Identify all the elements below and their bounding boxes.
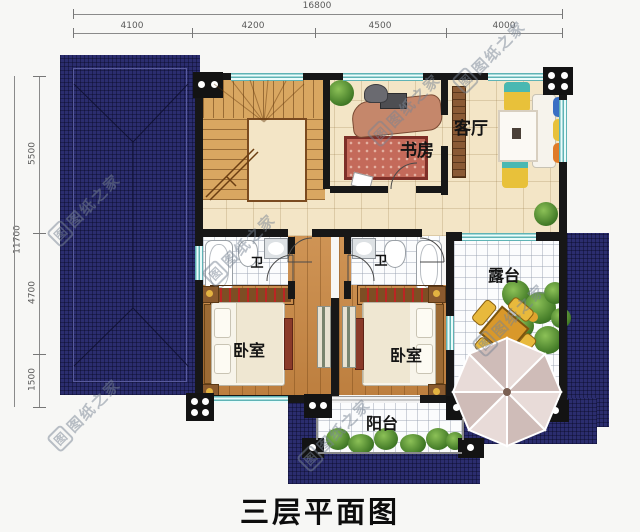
dim-left-seg-2: 4700 <box>28 263 39 323</box>
dim-line <box>14 76 15 407</box>
window <box>214 396 288 403</box>
dim-top-seg-3: 4500 <box>355 21 405 32</box>
balcony-shrub <box>400 434 426 454</box>
bathroom-right-label: 卫 <box>370 254 392 270</box>
dim-top-total: 16800 <box>287 1 347 12</box>
left-roof-ridge-border <box>73 68 187 382</box>
column-post <box>458 438 484 458</box>
bed-end-bench <box>355 318 364 370</box>
column-post <box>193 72 223 98</box>
study-label: 书房 <box>388 141 446 161</box>
bedroom-right-label: 卧室 <box>376 346 436 365</box>
column-post <box>446 396 478 420</box>
column-post <box>186 393 214 421</box>
dim-left-seg-1: 5500 <box>28 124 39 184</box>
wall <box>288 237 295 254</box>
balcony-railing <box>462 418 464 440</box>
wall <box>344 237 351 254</box>
floor-plan-page: 16800 4100 4200 4500 4000 11700 5500 470… <box>0 0 640 532</box>
nightstand <box>428 286 446 303</box>
balcony-railing <box>318 452 462 454</box>
window <box>559 100 567 162</box>
dim-left-seg-3: 1500 <box>28 350 39 410</box>
potted-plant-icon <box>328 80 354 106</box>
column-post <box>543 400 569 422</box>
window <box>446 316 454 350</box>
bed-end-bench <box>284 318 293 370</box>
window <box>462 233 536 241</box>
blanket <box>363 303 410 383</box>
wall <box>323 77 330 189</box>
pillow <box>214 308 231 338</box>
stair-treads-left <box>203 118 247 200</box>
column-post <box>304 394 332 418</box>
window <box>343 73 423 81</box>
wall <box>288 281 295 299</box>
column-post <box>543 67 573 95</box>
plan-title: 三层平面图 <box>160 489 480 531</box>
dim-line <box>73 33 562 34</box>
terrace-label: 露台 <box>478 266 530 285</box>
dim-top-seg-2: 4200 <box>228 21 278 32</box>
bathroom-left-label: 卫 <box>246 256 268 272</box>
wall <box>195 73 203 403</box>
armchair <box>504 82 530 112</box>
decor-panel <box>342 306 356 368</box>
office-chair <box>364 84 388 103</box>
balcony-shrub <box>348 434 374 454</box>
wall <box>331 298 339 397</box>
wall <box>536 232 567 241</box>
armchair <box>502 158 528 188</box>
wall <box>416 186 448 193</box>
window <box>231 73 303 81</box>
table-decor <box>512 128 521 139</box>
dim-line <box>39 76 40 407</box>
decor-panel <box>317 306 331 368</box>
dim-top-seg-1: 4100 <box>107 21 157 32</box>
potted-plant-icon <box>534 202 558 226</box>
stair-void <box>247 118 307 202</box>
bedroom-left-label: 卧室 <box>219 341 279 360</box>
dim-line <box>73 14 562 15</box>
pillow <box>416 308 433 338</box>
living-room-label: 客厅 <box>448 119 494 139</box>
wall <box>344 281 351 299</box>
wall <box>312 229 422 237</box>
wall <box>330 186 388 193</box>
window <box>488 73 546 81</box>
balcony-sliding-door <box>332 396 420 403</box>
nightstand <box>201 286 219 303</box>
